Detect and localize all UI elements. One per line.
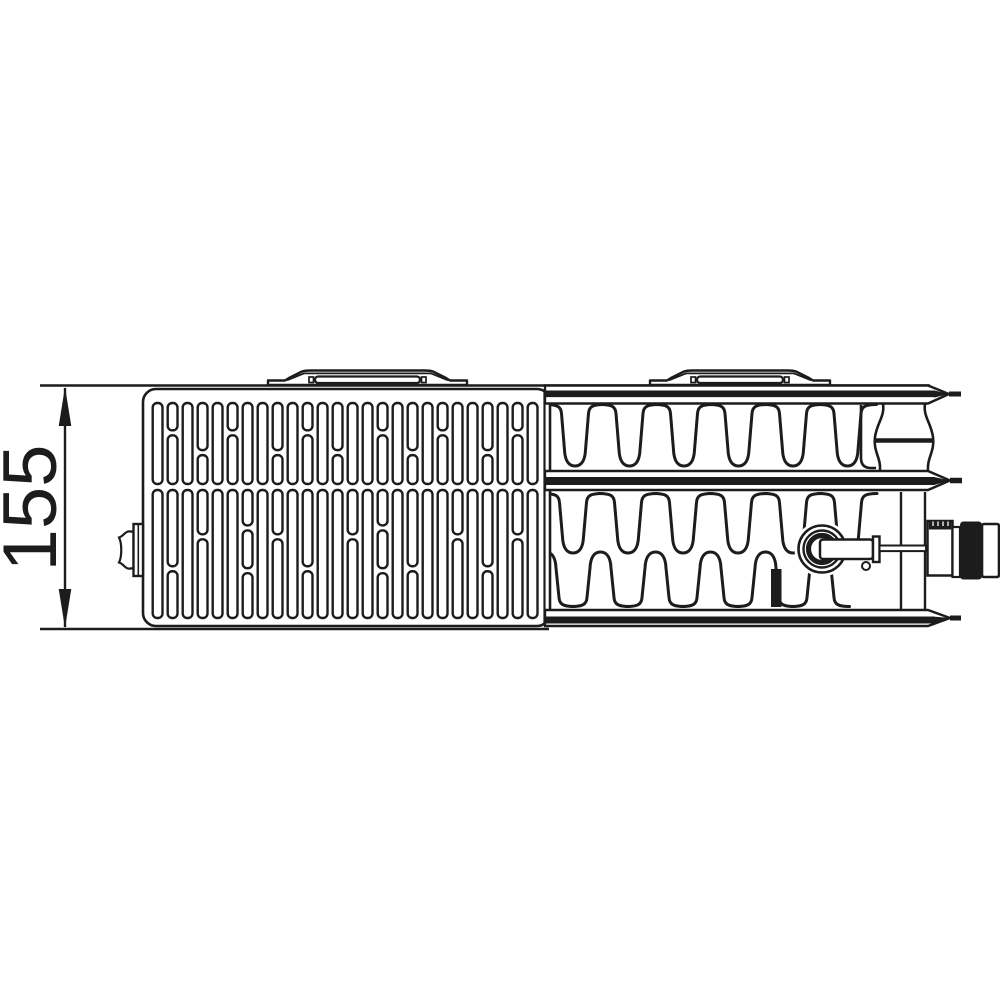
dimension-label: 155 xyxy=(0,445,73,572)
section-cut-mark xyxy=(771,569,782,607)
mounting-clip xyxy=(268,371,467,386)
valve-connection xyxy=(928,521,1000,580)
clip-window xyxy=(697,377,783,384)
vent-plug xyxy=(119,524,143,576)
seal-ring xyxy=(960,522,982,580)
arrow-down-icon xyxy=(59,589,72,628)
water-channel xyxy=(861,404,934,470)
fin-channel xyxy=(654,494,712,554)
fin-channel xyxy=(737,552,795,607)
fin-channel xyxy=(764,405,822,467)
fin-channel xyxy=(682,552,740,607)
valve-pin xyxy=(862,562,870,570)
mounting-clip xyxy=(650,371,830,386)
mounting-clips xyxy=(268,371,830,386)
fin-channel xyxy=(709,494,767,554)
fin-channel xyxy=(627,552,685,607)
valve-body-cylinder xyxy=(820,540,873,560)
valve-stem xyxy=(880,546,927,552)
fin-channel xyxy=(544,494,602,554)
fin-channel xyxy=(655,405,713,467)
fin-channel xyxy=(819,405,877,467)
fin-channel xyxy=(601,405,659,467)
top-panel-plate xyxy=(545,386,961,404)
fin-channel xyxy=(599,494,657,554)
bottom-panel-plate xyxy=(545,610,961,626)
fin-channel xyxy=(710,405,768,467)
radiator-section xyxy=(517,386,1000,627)
drawing-canvas: 155 xyxy=(0,0,1000,1000)
washer xyxy=(953,527,961,577)
middle-panel-plate xyxy=(545,471,962,490)
grille-panel xyxy=(143,389,550,626)
end-cap xyxy=(982,524,999,577)
clip-window xyxy=(315,377,420,384)
arrow-up-icon xyxy=(59,387,72,426)
radiator-technical-drawing: 155 xyxy=(0,0,1000,1000)
fin-channel xyxy=(572,552,630,607)
fin-channel xyxy=(546,405,604,467)
